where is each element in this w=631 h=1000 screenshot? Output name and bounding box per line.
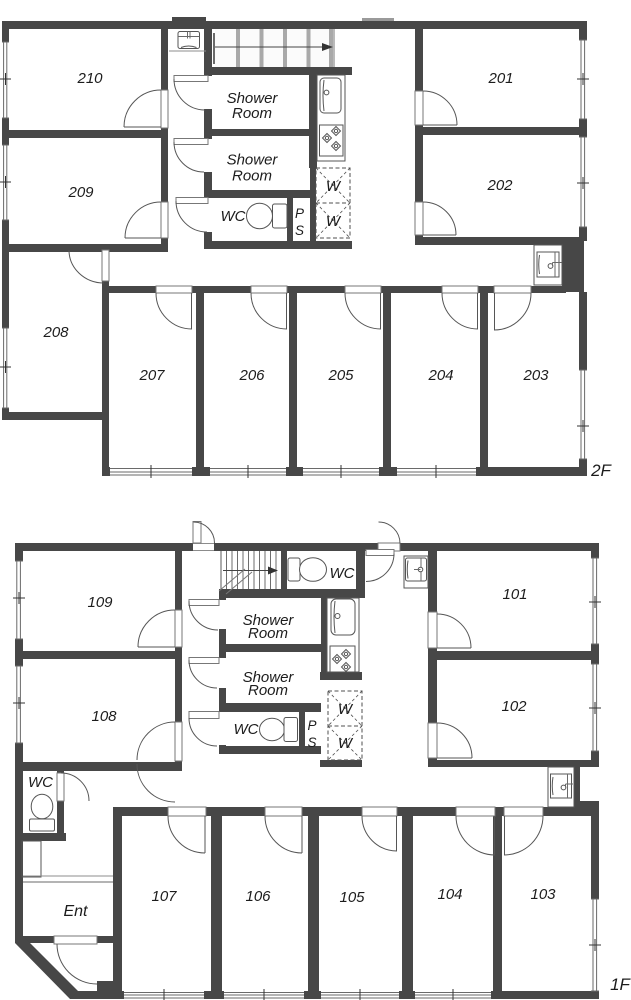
svg-text:202: 202 <box>486 177 513 194</box>
svg-text:108: 108 <box>91 708 117 725</box>
svg-text:102: 102 <box>501 698 527 715</box>
svg-text:210: 210 <box>76 70 103 87</box>
svg-text:201: 201 <box>487 70 513 87</box>
svg-text:Room: Room <box>232 105 272 122</box>
svg-text:2F: 2F <box>590 461 612 480</box>
svg-text:W: W <box>338 701 354 718</box>
svg-text:204: 204 <box>427 367 453 384</box>
svg-text:W: W <box>326 178 342 195</box>
svg-text:207: 207 <box>138 367 165 384</box>
svg-text:203: 203 <box>522 367 549 384</box>
svg-text:S: S <box>307 735 316 750</box>
svg-text:101: 101 <box>502 586 527 603</box>
svg-text:S: S <box>295 223 304 238</box>
svg-text:106: 106 <box>245 888 271 905</box>
svg-text:WC: WC <box>221 208 246 225</box>
svg-text:P: P <box>307 718 316 733</box>
svg-text:1F: 1F <box>610 975 631 994</box>
svg-text:107: 107 <box>151 888 177 905</box>
svg-text:103: 103 <box>530 886 556 903</box>
svg-text:W: W <box>338 735 354 752</box>
svg-text:209: 209 <box>67 184 94 201</box>
svg-text:Room: Room <box>248 625 288 642</box>
svg-text:Room: Room <box>232 168 272 185</box>
svg-text:P: P <box>295 206 304 221</box>
svg-text:206: 206 <box>238 367 265 384</box>
svg-text:WC: WC <box>330 565 355 582</box>
svg-text:109: 109 <box>87 594 113 611</box>
svg-text:W: W <box>326 213 342 230</box>
svg-text:Room: Room <box>248 682 288 699</box>
svg-text:205: 205 <box>327 367 354 384</box>
svg-text:208: 208 <box>42 324 69 341</box>
svg-text:WC: WC <box>28 774 53 791</box>
svg-text:105: 105 <box>339 889 365 906</box>
svg-text:104: 104 <box>437 886 462 903</box>
svg-text:WC: WC <box>234 721 259 738</box>
svg-text:Ent: Ent <box>63 903 88 920</box>
svg-text:Shower: Shower <box>227 152 279 169</box>
